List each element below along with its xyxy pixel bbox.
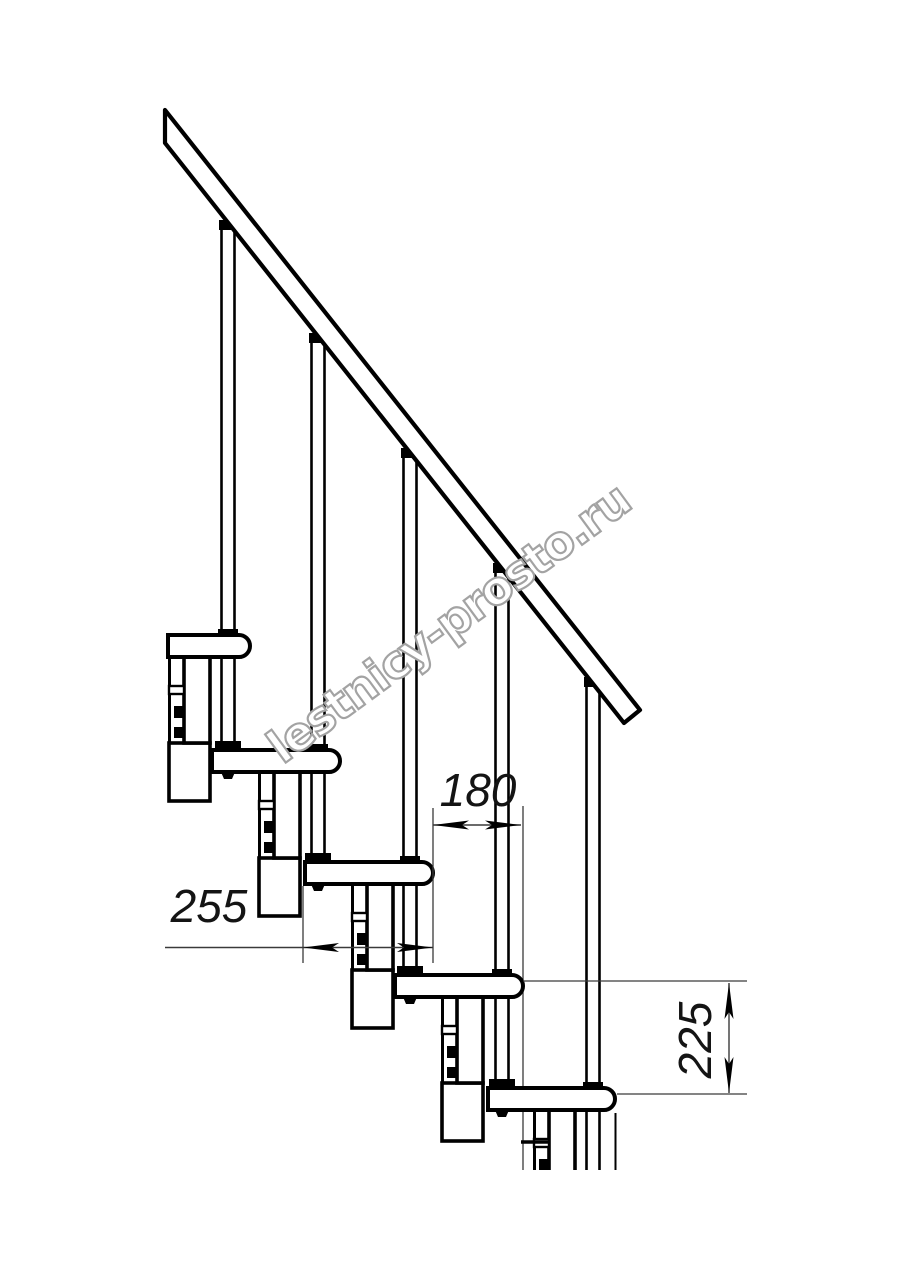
staircase-drawing: 255 180 225 lestnicy-prosto.ru — [0, 0, 914, 1280]
module-tab — [352, 913, 367, 921]
module-column — [184, 657, 210, 743]
baluster-flange — [215, 741, 241, 750]
tread — [395, 975, 523, 997]
module-box — [259, 858, 300, 916]
baluster — [404, 456, 417, 975]
bolt-head — [174, 706, 184, 718]
module-column — [274, 772, 300, 858]
bolt-head — [447, 1046, 457, 1058]
dim-run-label: 180 — [440, 764, 517, 816]
baluster-flange — [397, 966, 423, 975]
baluster — [496, 571, 509, 1088]
bolt-head — [264, 842, 274, 853]
module-tab — [259, 801, 274, 809]
dim-tread-depth-label: 255 — [170, 880, 248, 932]
module-tab — [169, 686, 184, 694]
bolt-head — [264, 821, 274, 833]
tread — [305, 862, 433, 884]
module-box — [169, 743, 210, 801]
bolt-head — [447, 1067, 457, 1078]
dim-rise-label: 225 — [669, 1001, 721, 1079]
tread-collar — [400, 856, 420, 862]
bolt-head — [539, 1159, 549, 1171]
bolt-head — [174, 727, 184, 738]
baluster-flange — [305, 853, 331, 862]
tread-collar — [583, 1082, 603, 1088]
module-box — [442, 1083, 483, 1141]
tread — [168, 635, 250, 657]
tread-collar — [218, 629, 238, 635]
tread — [488, 1088, 615, 1110]
bolt-head — [357, 933, 367, 945]
module-column — [367, 884, 393, 970]
module-column — [457, 997, 483, 1083]
tread-collar — [492, 969, 512, 975]
baluster-flange — [489, 1079, 515, 1088]
bolt-head — [357, 954, 367, 965]
baluster — [222, 228, 235, 750]
module-tab — [442, 1026, 457, 1034]
baluster — [312, 341, 325, 862]
module-box — [352, 970, 393, 1028]
